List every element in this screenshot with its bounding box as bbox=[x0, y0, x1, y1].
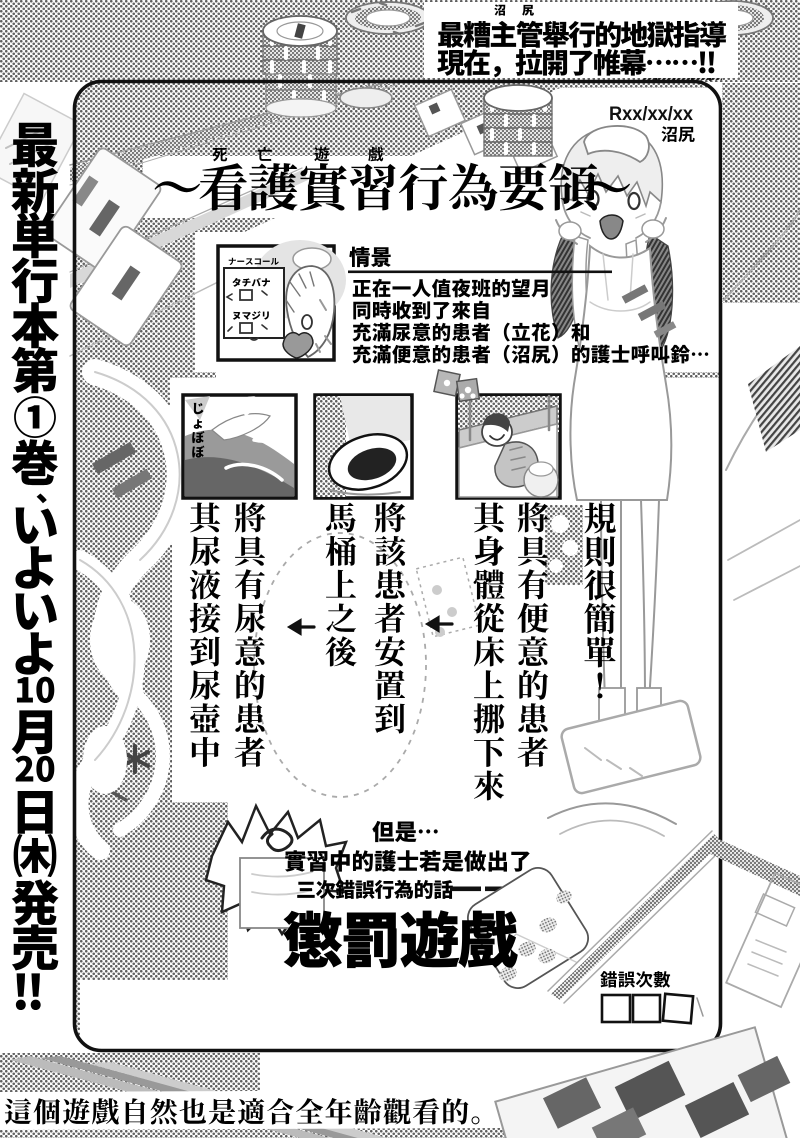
svg-text:Rxx/xx/xx: Rxx/xx/xx bbox=[609, 104, 693, 125]
